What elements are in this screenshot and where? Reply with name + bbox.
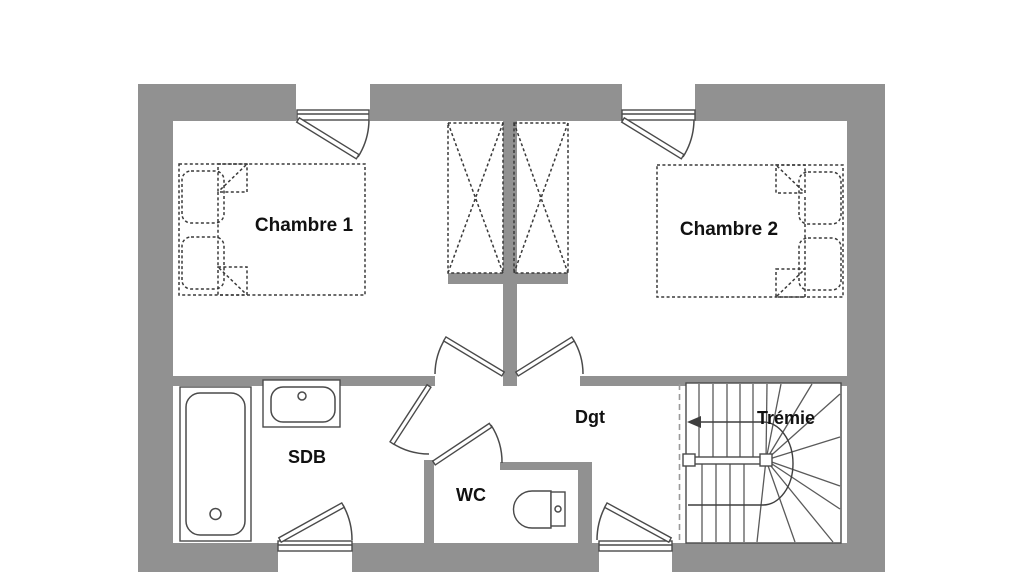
window-sill xyxy=(622,110,695,120)
window-chambre1 xyxy=(297,110,369,159)
bed-fold-diagonal xyxy=(777,166,804,192)
room-label-chambre1: Chambre 1 xyxy=(255,215,354,236)
room-label-tremie: Trémie xyxy=(757,408,815,428)
door-leaf xyxy=(444,337,505,376)
door-leaf xyxy=(516,337,574,376)
door-swing-arc xyxy=(392,443,429,454)
stair-stringer-cap xyxy=(683,454,695,466)
wall-wardrobe-stub-right xyxy=(514,273,568,284)
toilet-symbol xyxy=(514,491,566,528)
room-label-sdb: SDB xyxy=(288,447,326,467)
wall-wardrobe-stub-left xyxy=(448,273,503,284)
door-leaf xyxy=(433,423,492,465)
door-leaf xyxy=(390,385,431,445)
window-dgt xyxy=(597,503,672,551)
wall-right xyxy=(847,84,885,572)
door-sdb xyxy=(390,385,431,454)
window-swing-arc xyxy=(683,120,694,157)
wall-left xyxy=(138,84,173,572)
bed-fold-diagonal xyxy=(219,165,246,191)
door-chambre1 xyxy=(435,337,504,376)
window-leaf xyxy=(622,118,684,159)
window-sdb xyxy=(278,503,352,551)
wall-wc-right xyxy=(578,462,592,543)
stair-newel-cap xyxy=(760,454,772,466)
floor-plan: Chambre 1 Chambre 2 SDB WC Dgt Trémie xyxy=(0,0,1024,576)
door-wc xyxy=(433,423,502,465)
bathtub-outline xyxy=(180,387,251,541)
toilet-bowl xyxy=(514,491,552,528)
toilet-tank xyxy=(551,492,565,526)
bathtub-symbol xyxy=(180,387,251,541)
wall-bottom-left xyxy=(138,543,278,572)
wall-bottom-middle xyxy=(352,543,599,572)
room-label-wc: WC xyxy=(456,485,486,505)
bed-fold-diagonal xyxy=(219,268,246,294)
window-sill xyxy=(599,541,672,551)
door-swing-arc xyxy=(491,425,502,463)
window-leaf xyxy=(297,118,359,159)
wardrobe-symbol-right xyxy=(514,123,568,273)
window-leaf xyxy=(279,503,344,542)
window-swing-arc xyxy=(343,505,352,540)
wall-top-middle xyxy=(370,84,622,121)
window-chambre2 xyxy=(622,110,695,159)
window-sill xyxy=(278,541,352,551)
door-chambre2 xyxy=(516,337,583,376)
door-swing-arc xyxy=(435,339,445,374)
window-swing-arc xyxy=(597,505,606,540)
window-sill xyxy=(297,110,369,120)
bed-fold-diagonal xyxy=(777,270,804,296)
floor-plan-page: Chambre 1 Chambre 2 SDB WC Dgt Trémie xyxy=(0,0,1024,576)
window-swing-arc xyxy=(358,120,369,157)
wall-bedroom-divider xyxy=(503,121,517,386)
staircase-symbol xyxy=(680,383,842,543)
room-label-chambre2: Chambre 2 xyxy=(680,219,778,240)
window-leaf xyxy=(605,503,672,542)
door-swing-arc xyxy=(573,339,583,374)
wall-wc-left xyxy=(424,460,434,543)
room-label-dgt: Dgt xyxy=(575,407,605,427)
sink-symbol xyxy=(263,380,340,427)
wardrobe-symbol-left xyxy=(448,123,503,273)
wall-bottom-right xyxy=(672,543,885,572)
stair-stringer xyxy=(694,457,761,464)
